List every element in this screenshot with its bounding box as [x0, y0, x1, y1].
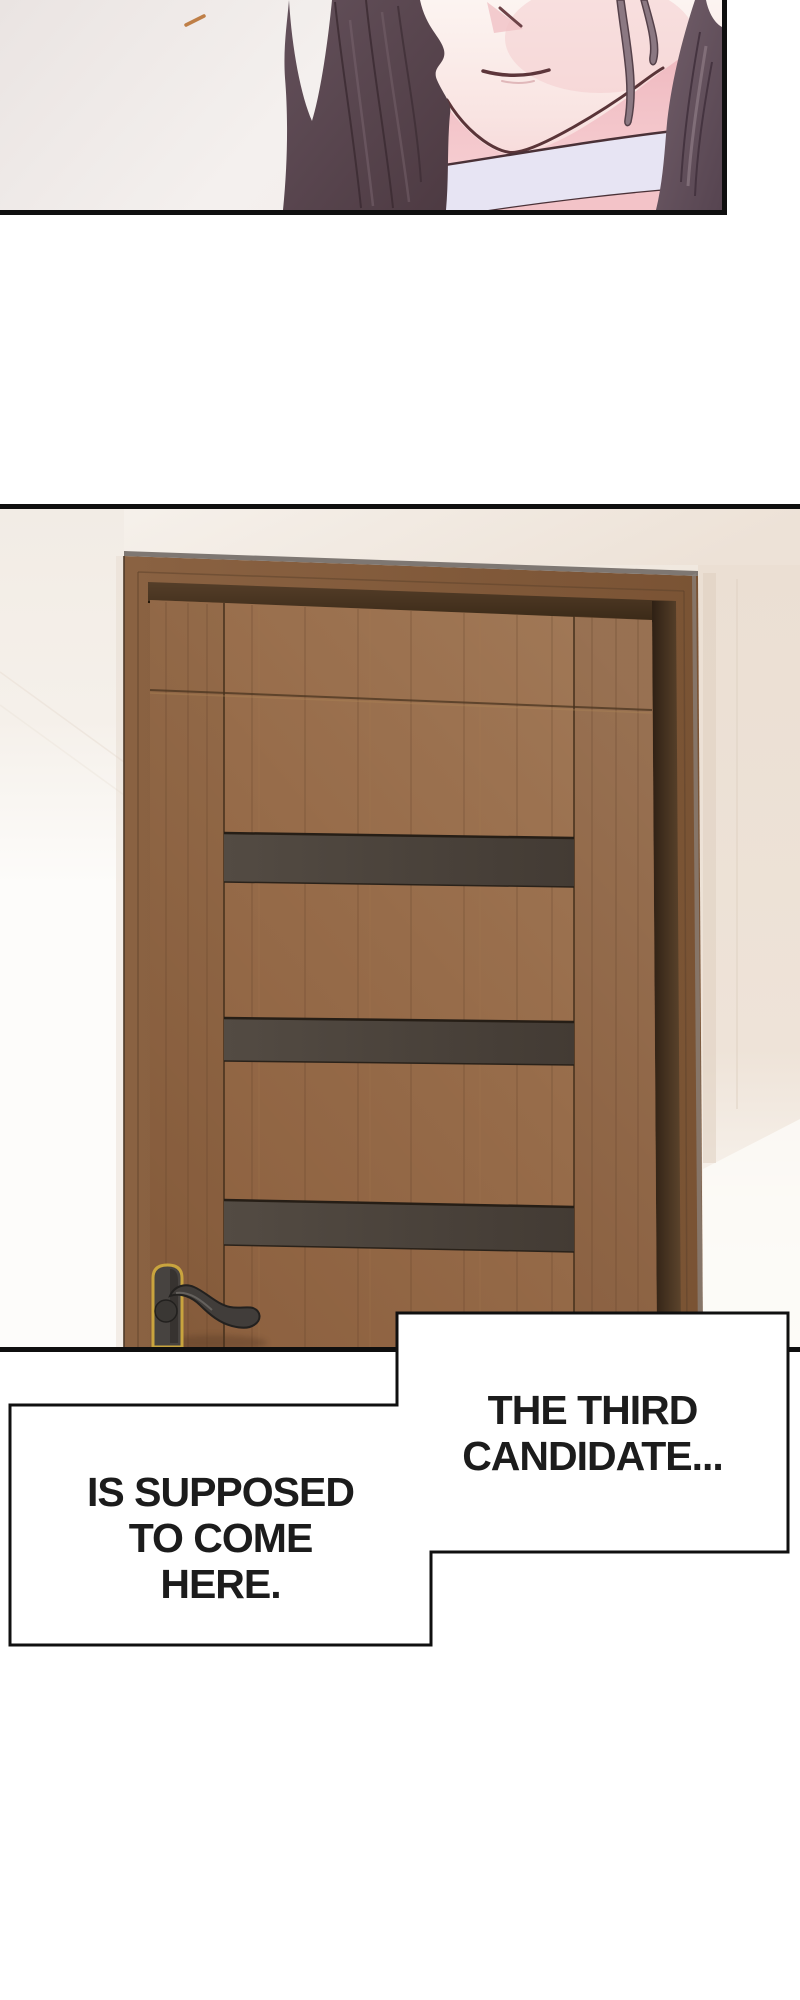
dialogue-line: THE THIRD [488, 1387, 698, 1433]
dialogue-line: CANDIDATE... [462, 1433, 723, 1479]
panel-closeup [0, 0, 727, 215]
dialogue-line: HERE. [160, 1561, 280, 1607]
door-artwork [0, 509, 800, 1347]
door [150, 600, 657, 1347]
closeup-artwork [0, 0, 722, 210]
speech-bubble-right: THE THIRD CANDIDATE... [397, 1313, 788, 1552]
panel-door [0, 504, 800, 1352]
dialogue-line: TO COME [129, 1515, 313, 1561]
comic-page: THE THIRD CANDIDATE... IS SUPPOSED TO CO… [0, 0, 800, 2000]
dialogue-line: IS SUPPOSED [87, 1469, 354, 1515]
speech-bubble-left: IS SUPPOSED TO COME HERE. [10, 1405, 431, 1645]
